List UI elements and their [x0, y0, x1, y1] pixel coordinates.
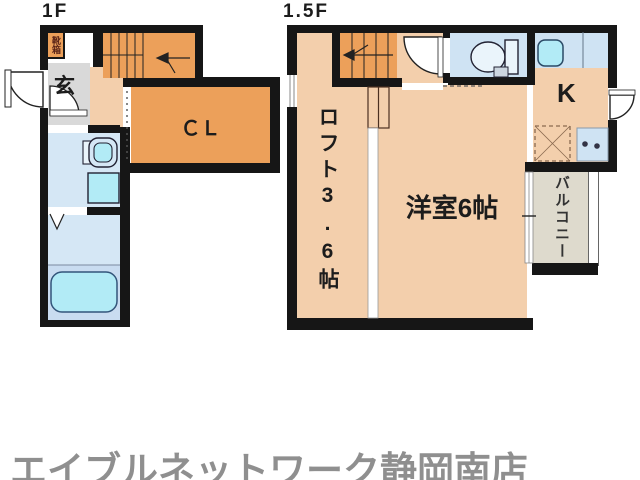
floor-label-15f: 1.5F — [283, 1, 329, 23]
wall-segment — [525, 162, 617, 172]
wall-segment — [287, 25, 297, 75]
floorplan-image: 1F 1.5F 靴箱 玄 ＣＬ ロフト3.6帖 洋室6帖 K バルコニー エイブ… — [0, 0, 640, 480]
wall-segment — [40, 320, 128, 327]
wall-segment — [122, 163, 280, 173]
wall-segment — [87, 207, 120, 215]
shoebox: 靴箱 — [46, 31, 65, 59]
wall-segment — [40, 125, 48, 133]
kitchen-label: K — [557, 78, 576, 109]
stairs-15f — [340, 33, 397, 78]
door-opening — [443, 38, 450, 73]
balcony-label: バルコニー — [551, 175, 572, 260]
closet-label: ＣＬ — [131, 112, 270, 141]
wall-segment — [608, 25, 617, 88]
kitchen-door-arc — [609, 90, 635, 119]
window-opening — [287, 75, 297, 107]
wall-segment — [270, 77, 280, 173]
bathtub-zone — [48, 265, 120, 320]
wall-segment — [448, 77, 535, 85]
wall-segment — [123, 78, 203, 87]
door-opening — [40, 70, 48, 108]
room-bathroom — [48, 215, 120, 265]
room-toilet-15f — [448, 32, 527, 77]
wall-segment — [88, 125, 120, 133]
floor-label-1f: 1F — [42, 1, 68, 23]
agency-brand-text: エイブルネットワーク静岡南店 — [10, 440, 528, 480]
wall-segment — [93, 25, 103, 67]
wall-segment — [287, 318, 533, 330]
shoebox-label: 靴箱 — [51, 36, 60, 54]
wall-segment — [287, 107, 297, 330]
door-opening — [48, 125, 88, 133]
kitchen-counter — [533, 32, 608, 68]
wall-segment — [120, 127, 130, 327]
room-washroom — [48, 133, 120, 207]
western-room-label: 洋室6帖 — [377, 188, 527, 225]
wall-segment — [443, 25, 450, 38]
genkan-label: 玄 — [54, 70, 75, 100]
corridor-15f — [397, 33, 443, 85]
wall-segment — [332, 78, 402, 87]
door-opening — [402, 83, 443, 90]
balcony-railing — [588, 168, 599, 266]
loft-label: ロフト3.6帖 — [312, 106, 342, 294]
wall-segment — [40, 108, 48, 327]
wall-segment — [532, 263, 598, 275]
wall-segment — [203, 77, 280, 87]
wall-segment — [527, 25, 535, 85]
entrance-door-arc — [5, 70, 43, 107]
stairs-1f — [103, 33, 195, 78]
door-opening — [48, 207, 87, 215]
